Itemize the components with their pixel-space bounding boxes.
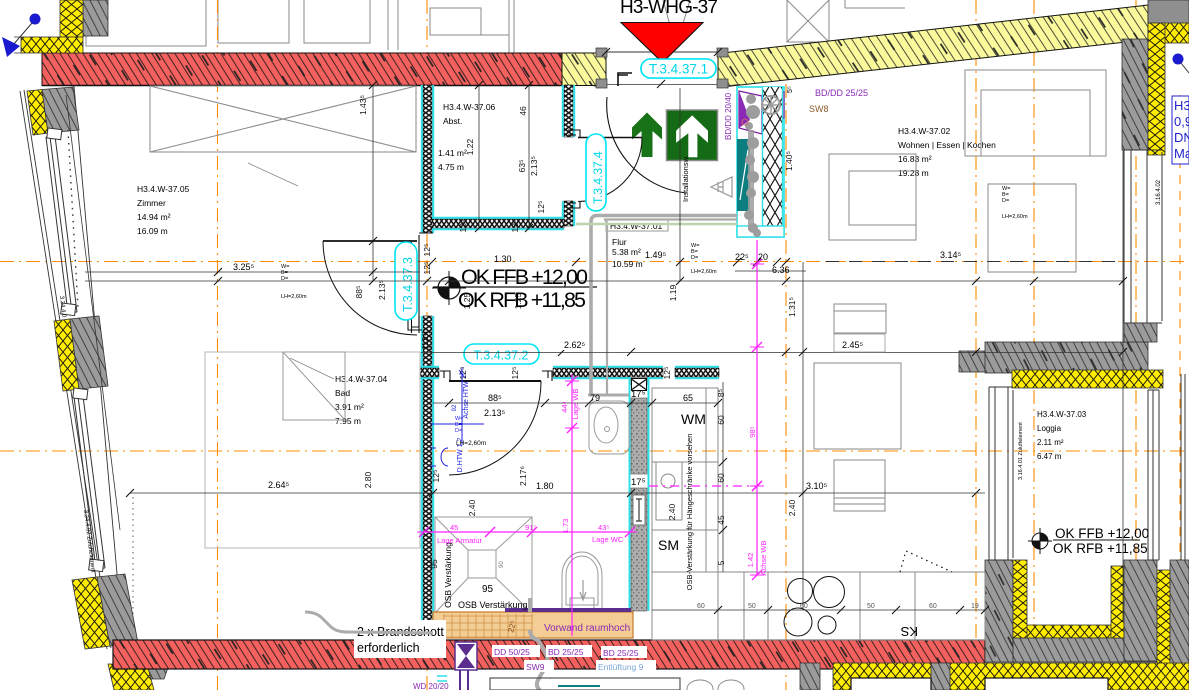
svg-text:T.3.4.37.3: T.3.4.37.3 xyxy=(401,257,415,312)
svg-text:7.95 m: 7.95 m xyxy=(335,416,361,426)
svg-text:63⁵: 63⁵ xyxy=(517,160,527,173)
svg-text:43⁵: 43⁵ xyxy=(598,523,609,532)
svg-text:1.30: 1.30 xyxy=(494,254,512,264)
svg-text:LH=2,60m: LH=2,60m xyxy=(456,440,486,447)
svg-text:2.40: 2.40 xyxy=(467,499,477,516)
svg-text:44⁴: 44⁴ xyxy=(560,401,569,413)
svg-text:19.28 m: 19.28 m xyxy=(898,168,929,178)
svg-text:D=: D= xyxy=(1002,198,1009,204)
svg-text:19: 19 xyxy=(971,603,979,610)
svg-text:2.40: 2.40 xyxy=(787,499,797,516)
svg-text:1.43⁵: 1.43⁵ xyxy=(358,95,368,115)
svg-text:H3: H3 xyxy=(1174,98,1189,113)
svg-text:2.80: 2.80 xyxy=(363,471,373,488)
svg-text:[12⁵]: [12⁵] xyxy=(420,331,430,349)
svg-text:SM: SM xyxy=(658,537,679,553)
svg-text:12⁵: 12⁵ xyxy=(510,220,520,233)
svg-text:50: 50 xyxy=(867,603,875,610)
svg-text:14.94 m²: 14.94 m² xyxy=(137,212,171,222)
svg-text:3.16.4.01 Zuluftelement: 3.16.4.01 Zuluftelement xyxy=(1018,422,1024,480)
svg-text:46: 46 xyxy=(518,106,528,116)
svg-text:6.47 m: 6.47 m xyxy=(1037,452,1062,461)
svg-text:3.14⁵: 3.14⁵ xyxy=(940,250,962,260)
svg-text:KS: KS xyxy=(900,624,918,639)
svg-text:79: 79 xyxy=(590,393,600,403)
svg-text:95: 95 xyxy=(429,559,439,569)
svg-text:20: 20 xyxy=(758,252,768,262)
svg-text:H3.4.W-37.01: H3.4.W-37.01 xyxy=(610,221,663,231)
svg-text:Achse HTW: Achse HTW xyxy=(463,381,470,419)
svg-text:8⁵: 8⁵ xyxy=(716,389,726,397)
svg-text:2.45⁵: 2.45⁵ xyxy=(842,340,864,350)
svg-text:3.16.4.02: 3.16.4.02 xyxy=(1156,179,1162,205)
svg-text:Entlüftung 9: Entlüftung 9 xyxy=(598,662,644,672)
svg-text:OSB Verstärkung: OSB Verstärkung xyxy=(458,600,528,610)
svg-text:T.3.4.37.2: T.3.4.37.2 xyxy=(474,349,529,363)
svg-text:DN: DN xyxy=(1174,130,1189,145)
svg-text:1.25: 1.25 xyxy=(462,292,472,309)
svg-text:60: 60 xyxy=(929,603,937,610)
svg-text:Lage Armatur: Lage Armatur xyxy=(437,536,483,545)
svg-text:D=: D= xyxy=(455,428,462,434)
svg-text:0,9: 0,9 xyxy=(1174,114,1189,129)
svg-text:Lage WB: Lage WB xyxy=(571,389,580,420)
svg-text:12⁵: 12⁵ xyxy=(536,201,546,214)
svg-text:95: 95 xyxy=(482,584,494,595)
svg-text:12⁵: 12⁵ xyxy=(510,367,520,380)
svg-text:H3.4.W-37.04: H3.4.W-37.04 xyxy=(335,374,388,384)
svg-text:H3.4.W-37.02: H3.4.W-37.02 xyxy=(898,126,951,136)
svg-text:OSB Verstärkung: OSB Verstärkung xyxy=(443,542,453,608)
svg-text:12⁵: 12⁵ xyxy=(422,262,432,275)
svg-text:D=: D= xyxy=(691,255,698,261)
svg-text:65: 65 xyxy=(683,393,693,403)
svg-text:OK RFB +11,85: OK RFB +11,85 xyxy=(1053,541,1148,556)
svg-text:Lage WC: Lage WC xyxy=(592,535,624,544)
svg-text:H3.4.W-37.06: H3.4.W-37.06 xyxy=(443,102,496,112)
svg-text:Flur: Flur xyxy=(612,237,627,247)
svg-text:90: 90 xyxy=(499,561,505,568)
svg-text:50: 50 xyxy=(748,603,756,610)
svg-text:OK FFB +12,00: OK FFB +12,00 xyxy=(1055,526,1149,541)
svg-text:LH=2,60m: LH=2,60m xyxy=(281,294,307,300)
svg-text:1.19: 1.19 xyxy=(668,284,678,301)
svg-text:1.73: 1.73 xyxy=(561,519,570,534)
svg-text:12⁵: 12⁵ xyxy=(458,220,468,233)
svg-text:92: 92 xyxy=(452,404,458,411)
svg-text:16.83 m²: 16.83 m² xyxy=(898,154,932,164)
svg-text:1.41 m²: 1.41 m² xyxy=(438,148,467,158)
svg-text:3.91 m²: 3.91 m² xyxy=(335,402,364,412)
svg-text:12⁵: 12⁵ xyxy=(458,367,468,380)
svg-text:Loggia: Loggia xyxy=(1037,424,1062,433)
svg-text:45: 45 xyxy=(716,515,726,525)
svg-text:2.11 m²: 2.11 m² xyxy=(1037,438,1064,447)
svg-text:3.25⁵: 3.25⁵ xyxy=(233,262,255,272)
svg-text:WM: WM xyxy=(681,411,706,427)
svg-text:Achse WB: Achse WB xyxy=(759,540,768,575)
svg-text:2.62⁵: 2.62⁵ xyxy=(564,340,586,350)
svg-text:OSB-Verstärkung für Hängeschrä: OSB-Verstärkung für Hängeschränke vorseh… xyxy=(685,434,694,591)
svg-text:60: 60 xyxy=(800,603,808,610)
svg-text:5: 5 xyxy=(716,560,726,565)
svg-text:17⁵: 17⁵ xyxy=(631,389,646,400)
svg-text:5.38 m²: 5.38 m² xyxy=(612,247,641,257)
svg-text:16.09 m: 16.09 m xyxy=(137,226,168,236)
svg-text:2.13⁵: 2.13⁵ xyxy=(529,156,539,176)
svg-text:Installationsw.: Installationsw. xyxy=(681,155,690,202)
svg-text:Vorwand raumhoch: Vorwand raumhoch xyxy=(544,623,630,634)
svg-text:2.17⁶: 2.17⁶ xyxy=(518,466,528,486)
svg-text:60: 60 xyxy=(716,415,726,425)
svg-text:12⁵: 12⁵ xyxy=(431,470,441,483)
svg-text:Abst.: Abst. xyxy=(443,116,462,126)
svg-text:5⁵: 5⁵ xyxy=(787,86,794,93)
svg-text:88⁵: 88⁵ xyxy=(354,286,364,299)
svg-text:Zimmer: Zimmer xyxy=(137,198,166,208)
svg-text:60: 60 xyxy=(697,603,705,610)
svg-text:2.13⁵: 2.13⁵ xyxy=(484,408,506,418)
svg-text:17⁵: 17⁵ xyxy=(631,477,646,488)
svg-text:3.10⁵: 3.10⁵ xyxy=(806,481,828,491)
svg-text:2.13⁵: 2.13⁵ xyxy=(377,280,387,300)
svg-text:91⁵: 91⁵ xyxy=(525,523,536,532)
svg-text:T.3.4.37.4: T.3.4.37.4 xyxy=(591,151,605,204)
svg-text:4.75 m: 4.75 m xyxy=(438,162,464,172)
svg-text:1.80: 1.80 xyxy=(536,481,554,491)
svg-text:1.25: 1.25 xyxy=(513,292,523,309)
svg-text:12⁵: 12⁵ xyxy=(662,367,672,380)
svg-text:SW9: SW9 xyxy=(526,662,545,672)
svg-text:22⁵: 22⁵ xyxy=(735,252,749,262)
svg-text:1.40⁵: 1.40⁵ xyxy=(784,151,794,171)
svg-text:erforderlich: erforderlich xyxy=(357,641,420,655)
svg-text:12⁵: 12⁵ xyxy=(422,244,432,257)
svg-text:BD/DD 20/40: BD/DD 20/40 xyxy=(724,92,733,140)
svg-text:H3-WHG-37: H3-WHG-37 xyxy=(620,0,718,18)
svg-text:10.59 m: 10.59 m xyxy=(612,259,643,269)
svg-text:88⁵: 88⁵ xyxy=(488,393,502,403)
svg-text:SW8: SW8 xyxy=(809,104,829,114)
svg-text:1.42: 1.42 xyxy=(746,553,755,568)
svg-text:1.22: 1.22 xyxy=(465,138,475,155)
svg-text:DD 50/25: DD 50/25 xyxy=(494,647,530,657)
svg-text:H3.4.W-37.05: H3.4.W-37.05 xyxy=(137,184,190,194)
svg-text:98⁵: 98⁵ xyxy=(748,426,757,437)
svg-text:LH=2,60m: LH=2,60m xyxy=(691,269,717,275)
svg-text:Ma: Ma xyxy=(1174,146,1189,161)
svg-text:45: 45 xyxy=(450,523,458,532)
svg-text:2.40: 2.40 xyxy=(667,503,677,520)
svg-text:1.31⁵: 1.31⁵ xyxy=(787,297,797,317)
svg-text:60: 60 xyxy=(716,473,726,483)
svg-text:H3.4.W-37.03: H3.4.W-37.03 xyxy=(1037,410,1087,419)
svg-text:LH=2,60m: LH=2,60m xyxy=(1002,214,1028,220)
svg-text:T.3.4.37.1: T.3.4.37.1 xyxy=(649,62,708,77)
svg-text:1.49⁵: 1.49⁵ xyxy=(645,250,667,260)
svg-text:Bad: Bad xyxy=(335,388,350,398)
svg-text:2.64⁵: 2.64⁵ xyxy=(268,480,290,490)
svg-text:BD/DD 25/25: BD/DD 25/25 xyxy=(815,88,868,98)
svg-text:6.36: 6.36 xyxy=(772,265,790,275)
svg-text:OK FFB +12,00: OK FFB +12,00 xyxy=(461,265,588,289)
svg-text:WD 20/20: WD 20/20 xyxy=(413,682,449,690)
svg-text:BD 25/25: BD 25/25 xyxy=(603,648,639,658)
svg-text:BD 25/25: BD 25/25 xyxy=(548,647,584,657)
